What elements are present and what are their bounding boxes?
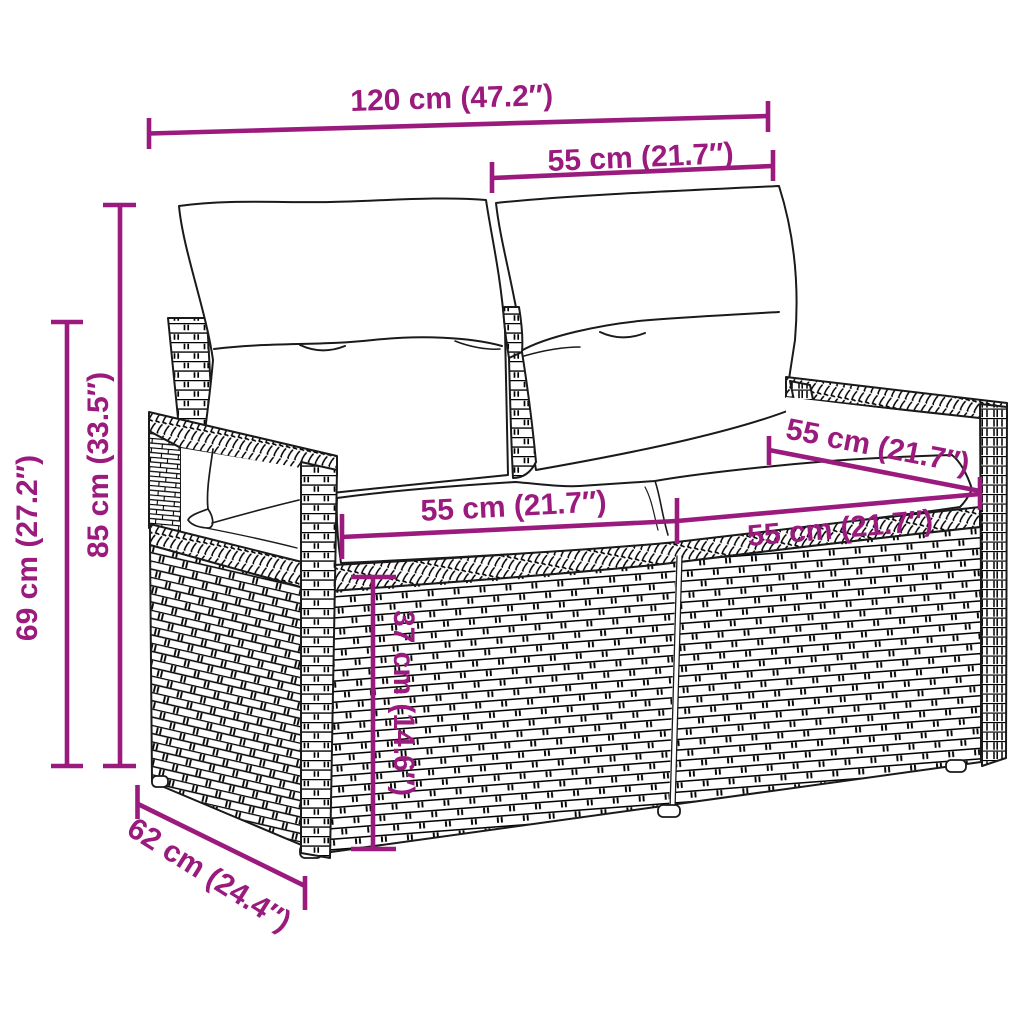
svg-text:69 cm (27.2″): 69 cm (27.2″) [11, 455, 44, 641]
svg-text:85 cm (33.5″): 85 cm (33.5″) [82, 372, 115, 558]
svg-text:120 cm (47.2″): 120 cm (47.2″) [350, 79, 554, 118]
svg-text:37 cm (14.6″): 37 cm (14.6″) [387, 610, 420, 796]
